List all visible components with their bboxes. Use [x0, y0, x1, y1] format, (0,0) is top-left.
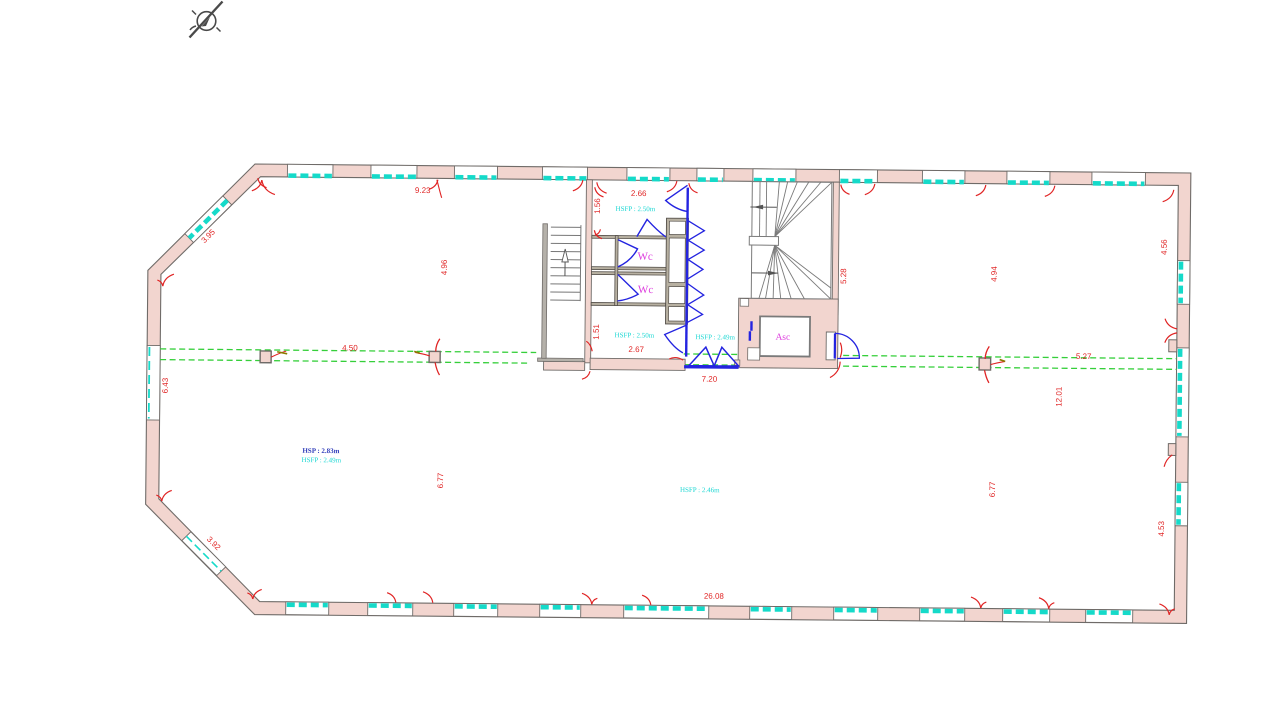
svg-text:7.20: 7.20 [702, 375, 718, 384]
svg-text:4.96: 4.96 [440, 259, 449, 275]
svg-text:9.23: 9.23 [415, 186, 431, 195]
svg-text:HSFP : 2.50m: HSFP : 2.50m [616, 205, 656, 213]
svg-text:2.66: 2.66 [631, 189, 647, 198]
svg-text:HSFP : 2.50m: HSFP : 2.50m [615, 331, 655, 339]
svg-text:6.43: 6.43 [161, 377, 170, 393]
svg-text:HSFP : 2.49m: HSFP : 2.49m [695, 333, 735, 341]
svg-text:6.77: 6.77 [436, 472, 445, 488]
svg-text:4.94: 4.94 [990, 266, 999, 282]
svg-text:12.01: 12.01 [1055, 386, 1064, 407]
svg-text:4.53: 4.53 [1157, 520, 1166, 536]
svg-text:HSP : 2.83m: HSP : 2.83m [302, 447, 339, 455]
svg-text:4.50: 4.50 [342, 343, 358, 352]
svg-text:5.27: 5.27 [1076, 352, 1092, 361]
svg-text:Wc: Wc [638, 251, 653, 263]
svg-text:HSFP : 2.49m: HSFP : 2.49m [302, 456, 342, 464]
svg-text:Wc: Wc [638, 284, 653, 296]
svg-text:HSFP : 2.46m: HSFP : 2.46m [680, 486, 720, 494]
svg-text:1.56: 1.56 [593, 198, 602, 214]
svg-text:6.77: 6.77 [988, 481, 997, 497]
svg-text:5.28: 5.28 [839, 268, 848, 284]
svg-text:4.56: 4.56 [1160, 239, 1169, 255]
svg-text:1.51: 1.51 [592, 324, 601, 340]
svg-text:Asc: Asc [775, 333, 790, 343]
svg-text:26.08: 26.08 [704, 592, 725, 601]
svg-text:2.67: 2.67 [628, 345, 644, 354]
